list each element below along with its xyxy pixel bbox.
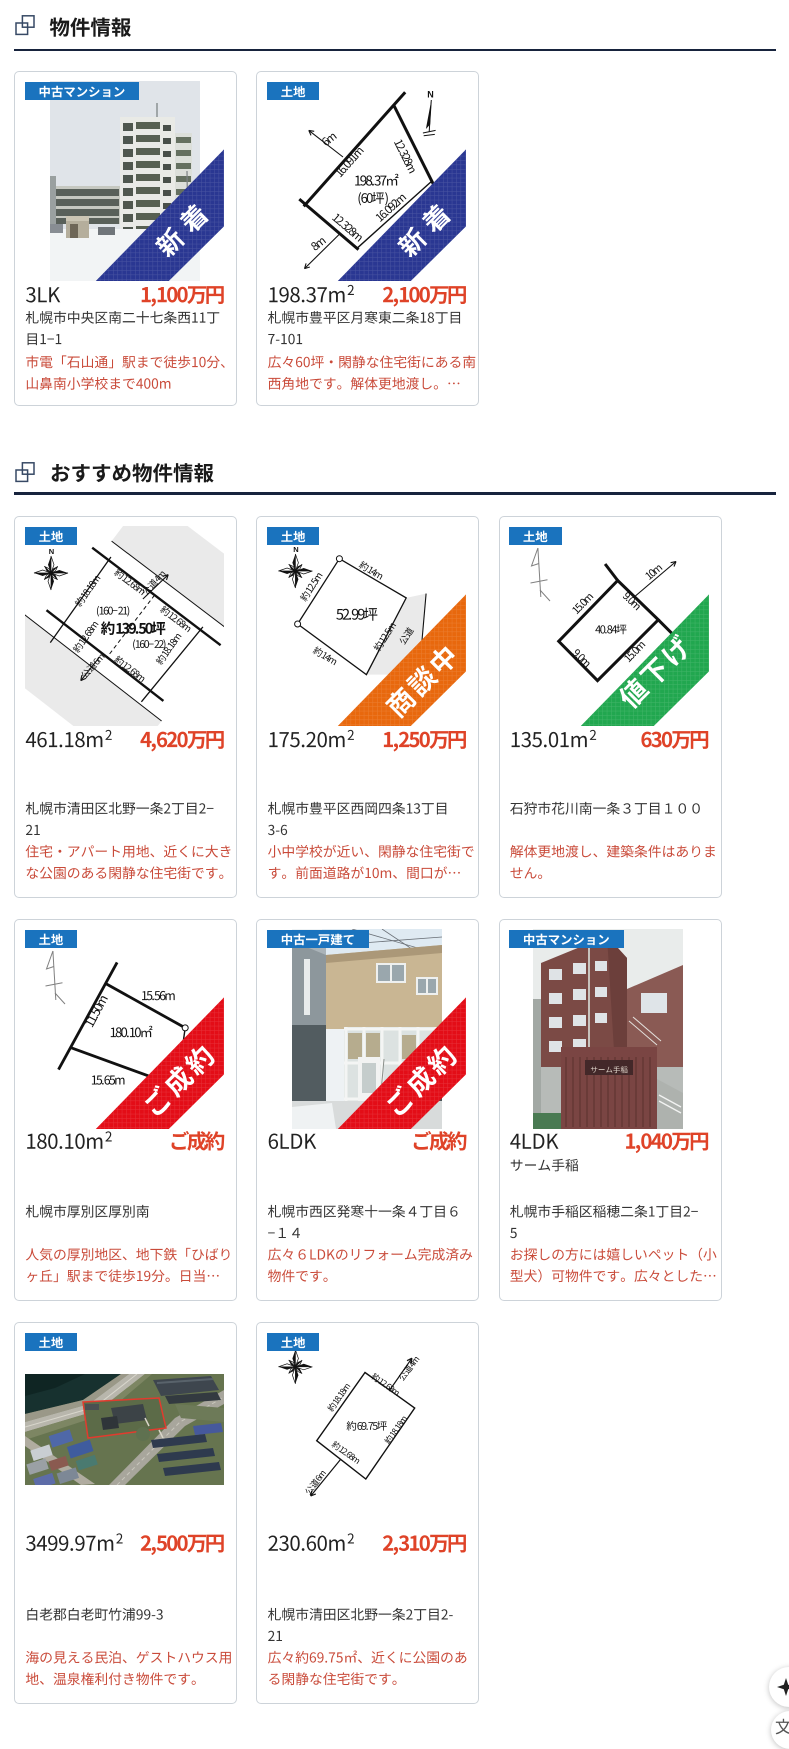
svg-text:N: N [49,547,54,556]
